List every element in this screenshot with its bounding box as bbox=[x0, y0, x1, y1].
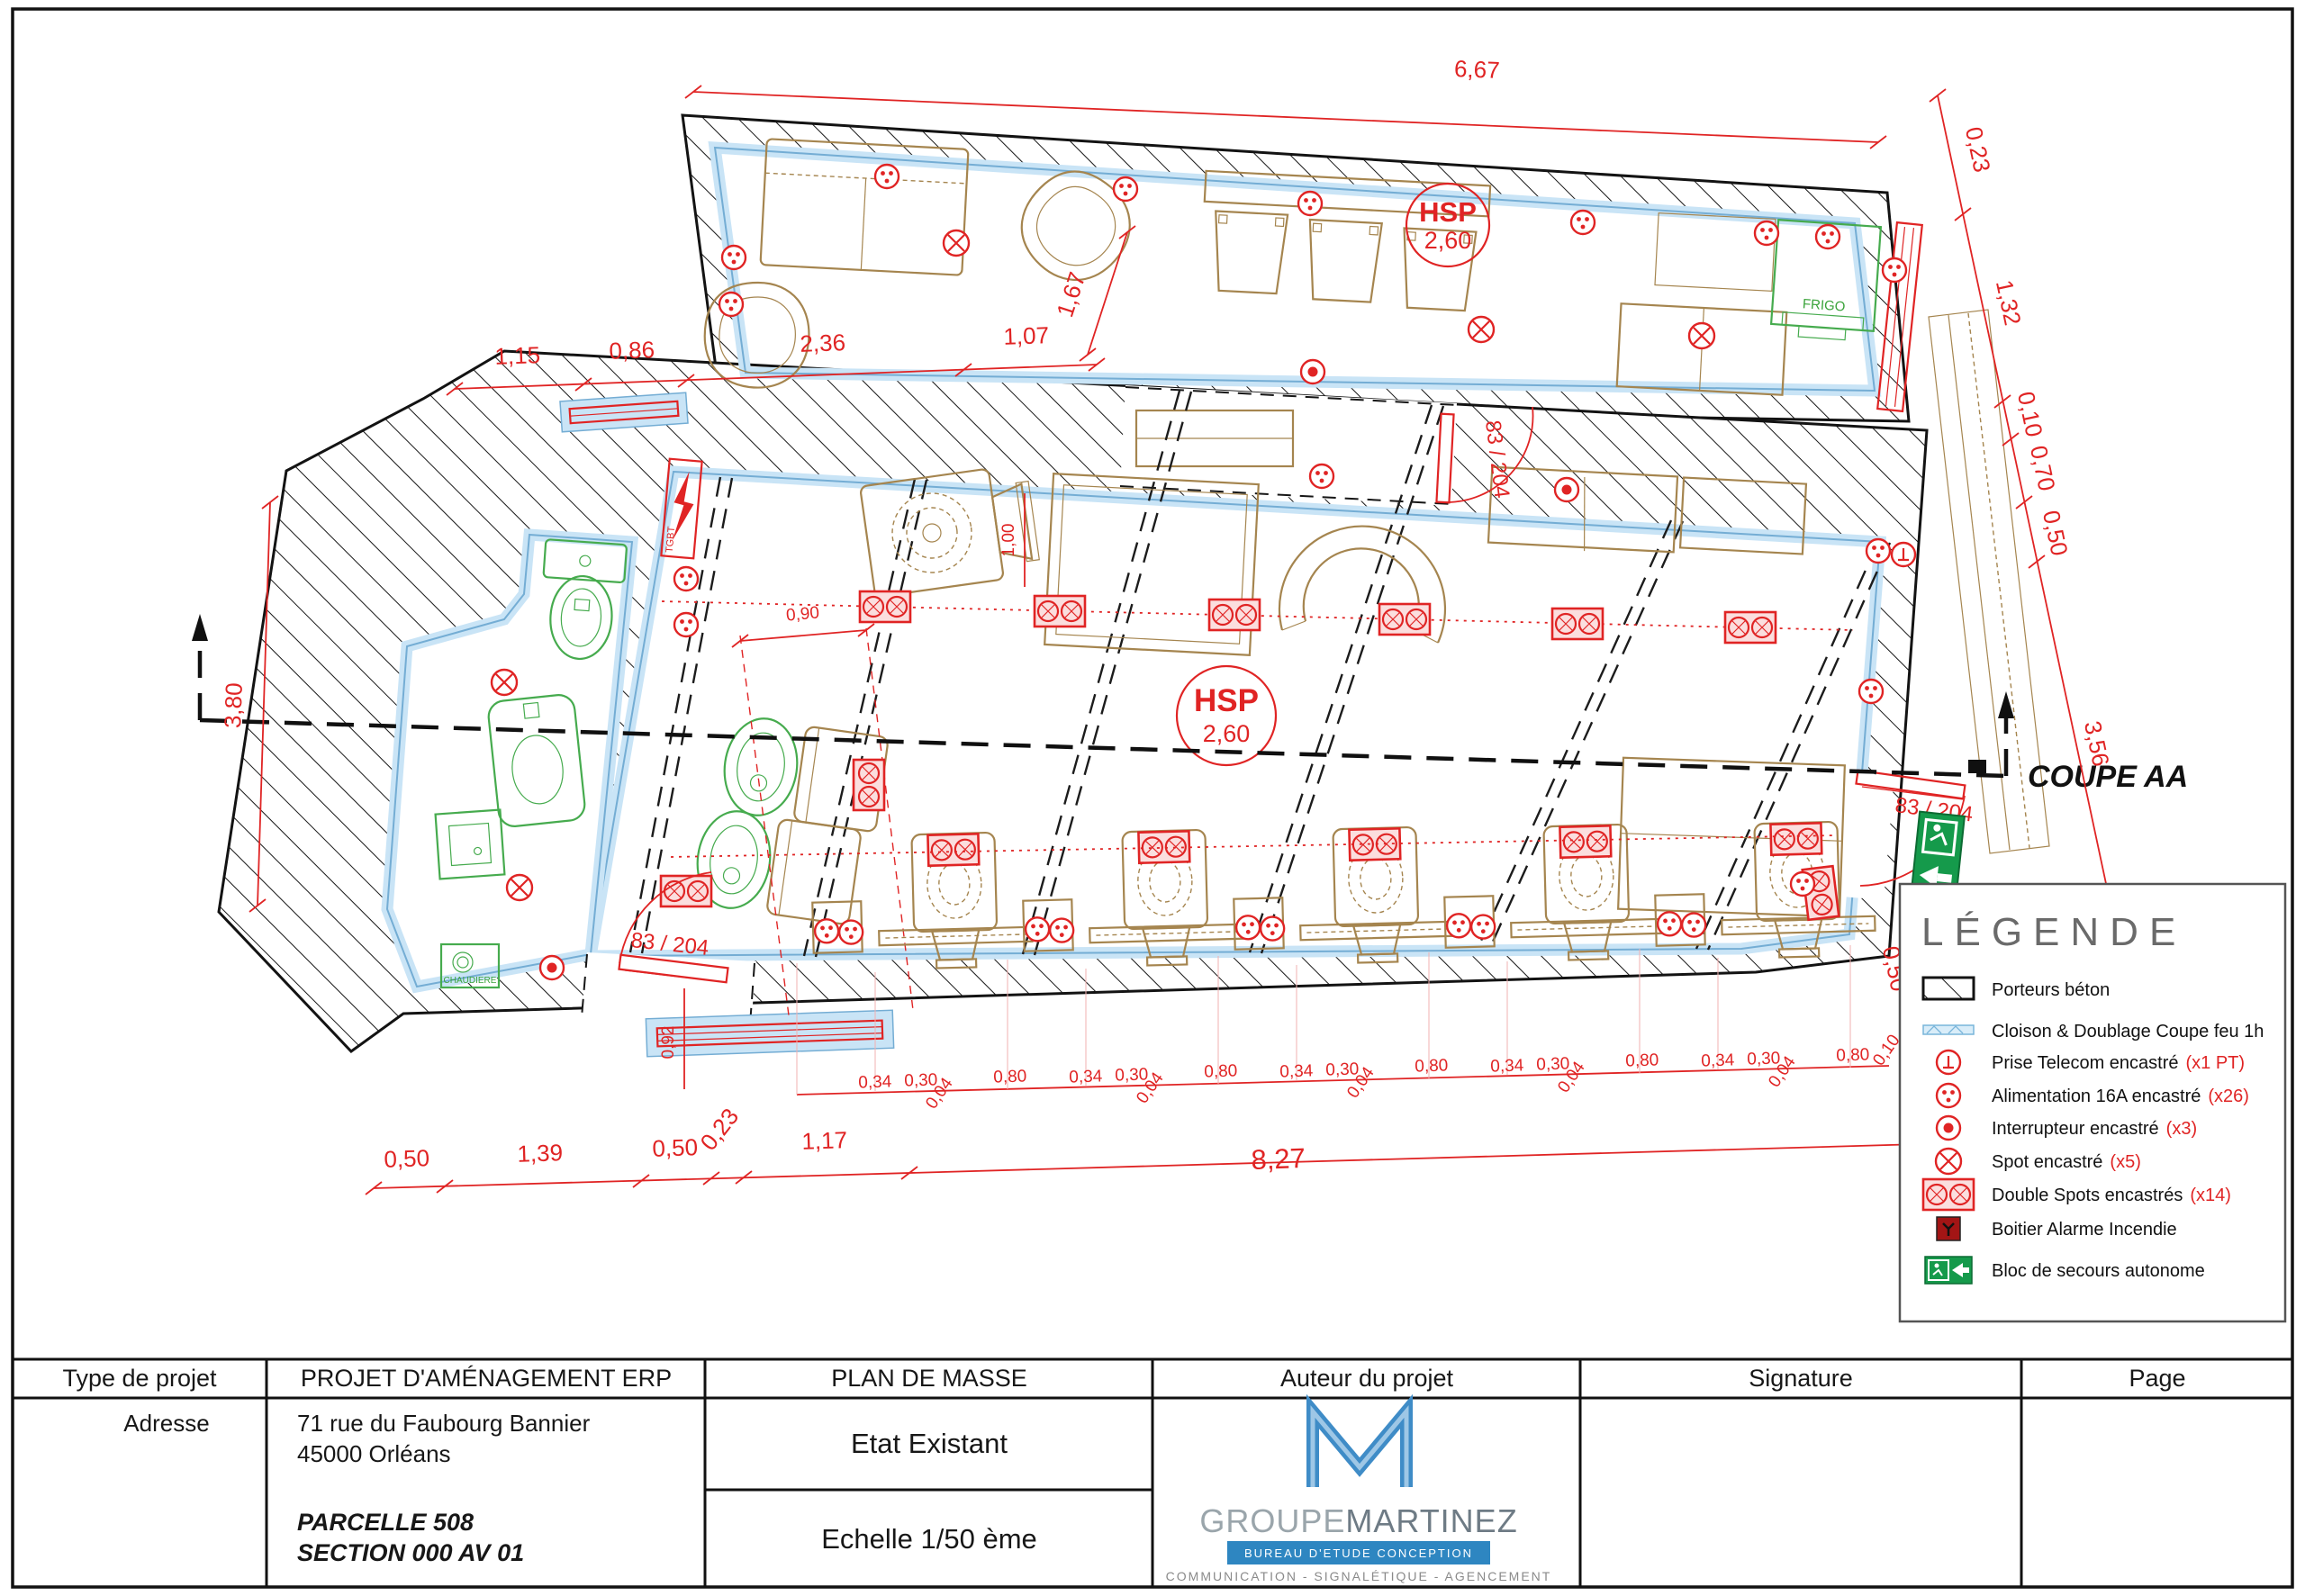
logo-m-mark bbox=[1313, 1411, 1406, 1487]
svg-text:0,34: 0,34 bbox=[858, 1072, 892, 1092]
svg-text:0,34: 0,34 bbox=[1279, 1061, 1314, 1081]
hsp-upper: HSP 2,60 bbox=[1406, 184, 1489, 266]
header-projet: PROJET D'AMÉNAGEMENT ERP bbox=[301, 1365, 672, 1392]
company-logo: GROUPEMARTINEZ BUREAU D'ETUDE CONCEPTION… bbox=[1166, 1411, 1552, 1583]
parcel-line2: SECTION 000 AV 01 bbox=[297, 1539, 524, 1566]
section-label: COUPE AA bbox=[2028, 760, 2188, 794]
svg-text:0,80: 0,80 bbox=[993, 1067, 1027, 1087]
svg-text:HSP: HSP bbox=[1194, 683, 1259, 718]
toilet bbox=[538, 539, 627, 662]
svg-text:0,50: 0,50 bbox=[652, 1133, 699, 1162]
svg-text:0,90: 0,90 bbox=[785, 603, 820, 625]
svg-text:0,23: 0,23 bbox=[1960, 124, 1996, 175]
legend-item-label: Boitier Alarme Incendie bbox=[1992, 1220, 2177, 1240]
spots-line-lower bbox=[671, 835, 1837, 857]
spot-icon bbox=[1936, 1149, 1961, 1174]
svg-text:0,23: 0,23 bbox=[695, 1103, 745, 1155]
header-auteur: Auteur du projet bbox=[1280, 1365, 1454, 1392]
svg-text:0,70: 0,70 bbox=[2025, 443, 2061, 493]
address-line1: 71 rue du Faubourg Bannier bbox=[297, 1410, 591, 1437]
legend-item-label: Porteurs béton bbox=[1992, 980, 2110, 1000]
legend-item-label: Bloc de secours autonome bbox=[1992, 1261, 2205, 1281]
svg-text:0,50: 0,50 bbox=[384, 1144, 430, 1173]
svg-text:0,86: 0,86 bbox=[609, 336, 655, 365]
alarme-icon bbox=[1937, 1217, 1960, 1240]
boiler-label: CHAUDIERE bbox=[444, 976, 497, 986]
cloison-swatch bbox=[1923, 1025, 1974, 1034]
logo-tagline: COMMUNICATION - SIGNALÉTIQUE - AGENCEMEN… bbox=[1166, 1569, 1552, 1583]
logo-subtitle: BUREAU D'ETUDE CONCEPTION bbox=[1244, 1546, 1473, 1560]
svg-text:0,92: 0,92 bbox=[659, 1026, 678, 1059]
wall-linings bbox=[387, 148, 1880, 987]
svg-text:2,60: 2,60 bbox=[1424, 227, 1472, 254]
station-dims-3: 0,34 0,30 0,04 0,80 bbox=[1279, 1056, 1449, 1102]
interrupteur-icon bbox=[1937, 1116, 1960, 1140]
svg-text:3,80: 3,80 bbox=[219, 682, 248, 729]
panel-label: TGBT bbox=[664, 526, 678, 554]
secours-icon bbox=[1925, 1257, 1972, 1284]
alimentation-icon bbox=[1937, 1084, 1960, 1107]
sink bbox=[487, 693, 586, 827]
svg-text:0,34: 0,34 bbox=[1490, 1056, 1524, 1076]
doc-state: Etat Existant bbox=[851, 1428, 1008, 1459]
svg-text:8,27: 8,27 bbox=[1251, 1142, 1306, 1176]
header-page: Page bbox=[2129, 1365, 2185, 1392]
header-plan-de-masse: PLAN DE MASSE bbox=[831, 1365, 1027, 1392]
water-heater bbox=[436, 810, 505, 879]
title-block-text: Type de projet PROJET D'AMÉNAGEMENT ERP … bbox=[62, 1365, 2185, 1566]
legend-item-label: Alimentation 16A encastré(x26) bbox=[1992, 1087, 2249, 1106]
svg-text:1,32: 1,32 bbox=[1991, 277, 2027, 328]
svg-text:0,80: 0,80 bbox=[1836, 1045, 1870, 1065]
drawing-sheet: FRIGO CHAUDIERE TGBT bbox=[0, 0, 2305, 1596]
double-spots-icon bbox=[1923, 1179, 1974, 1210]
legend-title: LÉGENDE bbox=[1921, 910, 2186, 954]
legend: LÉGENDE Porteurs béton Cloison & Doublag… bbox=[1900, 884, 2285, 1321]
svg-text:2,60: 2,60 bbox=[1203, 720, 1251, 747]
svg-text:0,10: 0,10 bbox=[2012, 389, 2048, 439]
svg-text:0,80: 0,80 bbox=[1204, 1061, 1238, 1081]
svg-text:0,34: 0,34 bbox=[1701, 1050, 1735, 1070]
legend-item-label: Prise Telecom encastré(x1 PT) bbox=[1992, 1053, 2245, 1073]
svg-text:0,80: 0,80 bbox=[1415, 1056, 1449, 1076]
logo-name: GROUPEMARTINEZ bbox=[1199, 1502, 1517, 1539]
svg-text:6,67: 6,67 bbox=[1453, 55, 1500, 84]
address-line2: 45000 Orléans bbox=[297, 1440, 451, 1467]
svg-text:HSP: HSP bbox=[1419, 196, 1477, 228]
svg-text:1,39: 1,39 bbox=[517, 1139, 564, 1168]
legend-item-label: Interrupteur encastré(x3) bbox=[1992, 1119, 2197, 1139]
svg-text:1,17: 1,17 bbox=[801, 1126, 848, 1155]
station-dims-5: 0,34 0,30 0,04 0,80 bbox=[1701, 1045, 1870, 1091]
legend-item-label: Double Spots encastrés(x14) bbox=[1992, 1186, 2231, 1205]
legend-item-label: Cloison & Doublage Coupe feu 1h bbox=[1992, 1022, 2264, 1041]
porteurs-beton-swatch bbox=[1923, 978, 1974, 999]
doc-scale: Echelle 1/50 ème bbox=[821, 1523, 1037, 1555]
svg-text:1,15: 1,15 bbox=[494, 341, 541, 370]
station-dims-4: 0,34 0,30 0,04 0,80 bbox=[1490, 1050, 1659, 1096]
svg-text:1,00: 1,00 bbox=[999, 524, 1018, 557]
parcel-line1: PARCELLE 508 bbox=[297, 1509, 474, 1536]
legend-item-label: Spot encastré(x5) bbox=[1992, 1152, 2141, 1172]
window-bottom bbox=[646, 1010, 893, 1057]
alarm-box bbox=[1968, 760, 1986, 773]
svg-text:0,50: 0,50 bbox=[2038, 508, 2074, 558]
header-signature: Signature bbox=[1749, 1365, 1853, 1392]
svg-text:1,07: 1,07 bbox=[1003, 321, 1050, 350]
prise-telecom-icon bbox=[1937, 1050, 1960, 1074]
boiler: CHAUDIERE bbox=[441, 944, 499, 987]
fridge-label: FRIGO bbox=[1802, 296, 1846, 314]
svg-text:2,36: 2,36 bbox=[800, 329, 846, 357]
svg-text:0,80: 0,80 bbox=[1625, 1050, 1659, 1070]
header-type-de-projet: Type de projet bbox=[62, 1365, 217, 1392]
address-label: Adresse bbox=[123, 1410, 209, 1437]
floor-plan-svg: FRIGO CHAUDIERE TGBT bbox=[0, 0, 2305, 1596]
svg-text:0,34: 0,34 bbox=[1069, 1067, 1103, 1087]
